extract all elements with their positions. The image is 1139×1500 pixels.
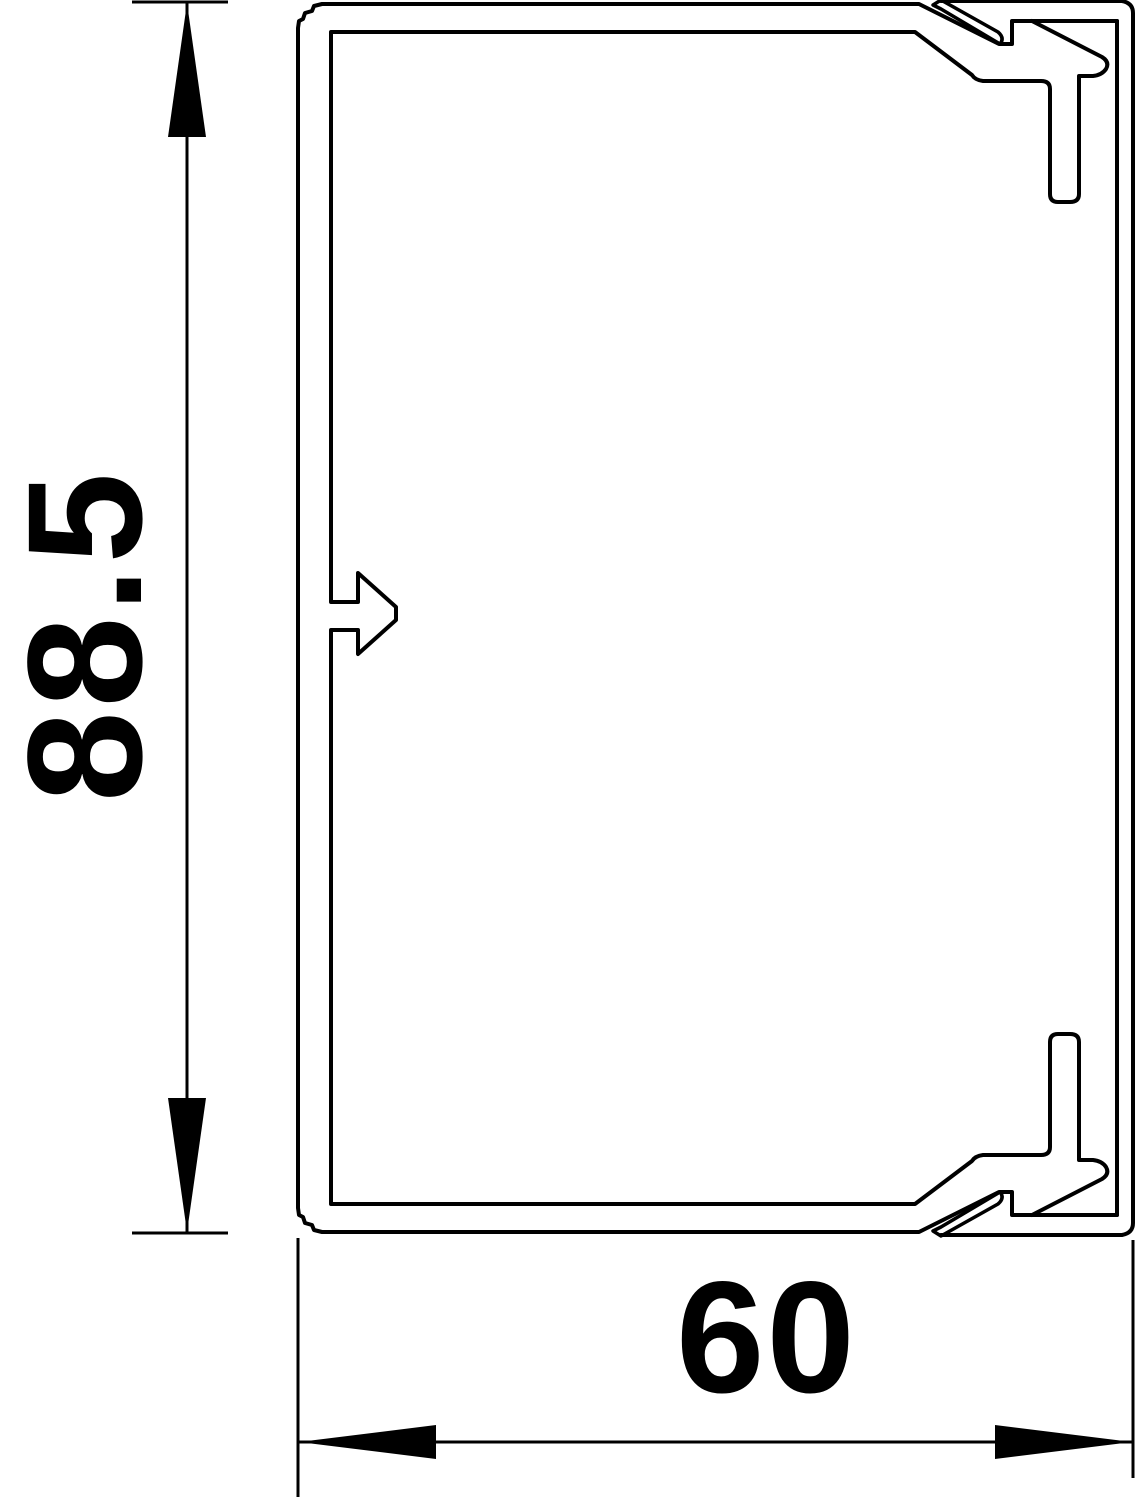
width-arrowhead-right-icon (995, 1425, 1132, 1459)
cover-lip-top (933, 0, 1002, 44)
trunking-cross-section-drawing: 88.5 60 (0, 0, 1139, 1500)
height-dimension: 88.5 (0, 2, 228, 1233)
height-arrowhead-up-icon (168, 3, 206, 137)
cover-profile (933, 0, 1133, 1236)
width-dimension-label: 60 (676, 1248, 857, 1426)
drawing-canvas: 88.5 60 (0, 0, 1139, 1500)
width-arrowhead-left-icon (299, 1425, 436, 1459)
height-arrowhead-down-icon (168, 1098, 206, 1232)
cover-outer-contour (941, 1, 1133, 1235)
base-inner-contour (331, 21, 1107, 1215)
cover-lip-bottom (933, 1192, 1002, 1236)
width-dimension: 60 (298, 1238, 1133, 1497)
base-profile (298, 4, 1117, 1232)
height-dimension-label: 88.5 (0, 469, 176, 802)
base-outer-contour (298, 4, 1117, 1232)
